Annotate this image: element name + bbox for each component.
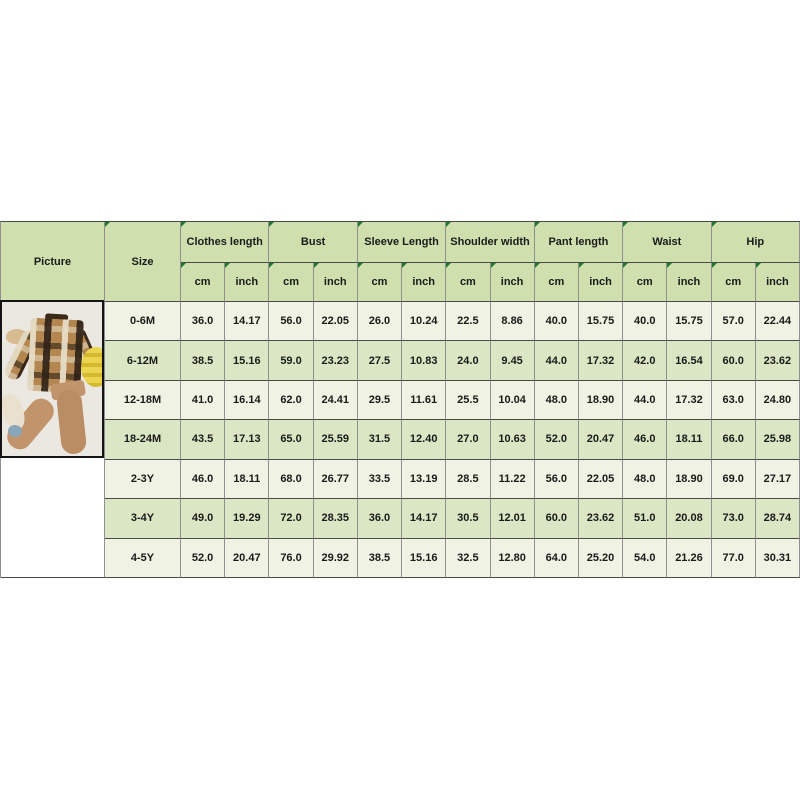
value-cell: 57.0 bbox=[712, 302, 756, 341]
value-cell: 27.0 bbox=[446, 420, 490, 459]
value-cell: 12.40 bbox=[402, 420, 446, 459]
value-cell: 54.0 bbox=[623, 539, 667, 578]
unit-header-cell: cm bbox=[446, 263, 490, 302]
value-cell: 46.0 bbox=[623, 420, 667, 459]
value-cell: 20.47 bbox=[579, 420, 623, 459]
size-cell: 12-18M bbox=[105, 381, 181, 420]
value-cell: 59.0 bbox=[269, 341, 313, 380]
value-cell: 56.0 bbox=[535, 460, 579, 499]
value-cell: 62.0 bbox=[269, 381, 313, 420]
value-cell: 40.0 bbox=[535, 302, 579, 341]
group-header-cell: Clothes length bbox=[181, 222, 269, 263]
value-cell: 9.45 bbox=[491, 341, 535, 380]
value-cell: 15.16 bbox=[225, 341, 269, 380]
unit-header-cell: inch bbox=[314, 263, 358, 302]
value-cell: 11.61 bbox=[402, 381, 446, 420]
size-cell: 0-6M bbox=[105, 302, 181, 341]
value-cell: 23.23 bbox=[314, 341, 358, 380]
group-header-cell: Waist bbox=[623, 222, 711, 263]
value-cell: 17.32 bbox=[667, 381, 711, 420]
value-cell: 30.31 bbox=[756, 539, 800, 578]
unit-header-cell: inch bbox=[579, 263, 623, 302]
picture-header-cell: Picture bbox=[1, 222, 105, 302]
value-cell: 10.24 bbox=[402, 302, 446, 341]
unit-header-cell: inch bbox=[491, 263, 535, 302]
value-cell: 36.0 bbox=[181, 302, 225, 341]
value-cell: 22.44 bbox=[756, 302, 800, 341]
value-cell: 25.59 bbox=[314, 420, 358, 459]
value-cell: 30.5 bbox=[446, 499, 490, 538]
value-cell: 11.22 bbox=[491, 460, 535, 499]
value-cell: 8.86 bbox=[491, 302, 535, 341]
value-cell: 25.20 bbox=[579, 539, 623, 578]
value-cell: 60.0 bbox=[535, 499, 579, 538]
value-cell: 12.01 bbox=[491, 499, 535, 538]
value-cell: 18.90 bbox=[579, 381, 623, 420]
product-photo bbox=[0, 300, 104, 458]
value-cell: 24.41 bbox=[314, 381, 358, 420]
value-cell: 27.17 bbox=[756, 460, 800, 499]
unit-header-cell: cm bbox=[535, 263, 579, 302]
value-cell: 25.5 bbox=[446, 381, 490, 420]
unit-header-cell: cm bbox=[269, 263, 313, 302]
group-header-cell: Pant length bbox=[535, 222, 623, 263]
value-cell: 12.80 bbox=[491, 539, 535, 578]
value-cell: 63.0 bbox=[712, 381, 756, 420]
size-table: PictureSizeClothes lengthBustSleeve Leng… bbox=[0, 221, 800, 578]
unit-header-cell: cm bbox=[712, 263, 756, 302]
size-cell: 18-24M bbox=[105, 420, 181, 459]
unit-header-cell: inch bbox=[756, 263, 800, 302]
group-header-cell: Shoulder width bbox=[446, 222, 534, 263]
value-cell: 33.5 bbox=[358, 460, 402, 499]
value-cell: 41.0 bbox=[181, 381, 225, 420]
unit-header-cell: inch bbox=[225, 263, 269, 302]
value-cell: 64.0 bbox=[535, 539, 579, 578]
size-cell: 2-3Y bbox=[105, 460, 181, 499]
value-cell: 73.0 bbox=[712, 499, 756, 538]
value-cell: 25.98 bbox=[756, 420, 800, 459]
value-cell: 18.11 bbox=[225, 460, 269, 499]
value-cell: 23.62 bbox=[756, 341, 800, 380]
unit-header-cell: cm bbox=[181, 263, 225, 302]
value-cell: 22.5 bbox=[446, 302, 490, 341]
value-cell: 60.0 bbox=[712, 341, 756, 380]
value-cell: 72.0 bbox=[269, 499, 313, 538]
value-cell: 36.0 bbox=[358, 499, 402, 538]
value-cell: 20.08 bbox=[667, 499, 711, 538]
value-cell: 23.62 bbox=[579, 499, 623, 538]
value-cell: 66.0 bbox=[712, 420, 756, 459]
value-cell: 27.5 bbox=[358, 341, 402, 380]
group-header-cell: Hip bbox=[712, 222, 800, 263]
value-cell: 15.16 bbox=[402, 539, 446, 578]
unit-header-cell: inch bbox=[667, 263, 711, 302]
yellow-hat bbox=[81, 347, 104, 387]
bunny-plush-foot bbox=[8, 425, 22, 437]
pant-leg-right bbox=[56, 389, 88, 455]
value-cell: 46.0 bbox=[181, 460, 225, 499]
unit-header-cell: inch bbox=[402, 263, 446, 302]
value-cell: 56.0 bbox=[269, 302, 313, 341]
size-cell: 6-12M bbox=[105, 341, 181, 380]
value-cell: 10.04 bbox=[491, 381, 535, 420]
value-cell: 24.0 bbox=[446, 341, 490, 380]
size-cell: 3-4Y bbox=[105, 499, 181, 538]
value-cell: 21.26 bbox=[667, 539, 711, 578]
value-cell: 18.11 bbox=[667, 420, 711, 459]
value-cell: 19.29 bbox=[225, 499, 269, 538]
value-cell: 52.0 bbox=[181, 539, 225, 578]
value-cell: 40.0 bbox=[623, 302, 667, 341]
value-cell: 32.5 bbox=[446, 539, 490, 578]
value-cell: 17.13 bbox=[225, 420, 269, 459]
group-header-cell: Sleeve Length bbox=[358, 222, 446, 263]
value-cell: 44.0 bbox=[535, 341, 579, 380]
value-cell: 14.17 bbox=[402, 499, 446, 538]
value-cell: 15.75 bbox=[667, 302, 711, 341]
value-cell: 26.0 bbox=[358, 302, 402, 341]
value-cell: 26.77 bbox=[314, 460, 358, 499]
value-cell: 14.17 bbox=[225, 302, 269, 341]
value-cell: 18.90 bbox=[667, 460, 711, 499]
unit-header-cell: cm bbox=[358, 263, 402, 302]
value-cell: 10.63 bbox=[491, 420, 535, 459]
value-cell: 48.0 bbox=[623, 460, 667, 499]
value-cell: 31.5 bbox=[358, 420, 402, 459]
page-canvas: PictureSizeClothes lengthBustSleeve Leng… bbox=[0, 0, 800, 800]
size-cell: 4-5Y bbox=[105, 539, 181, 578]
unit-header-cell: cm bbox=[623, 263, 667, 302]
value-cell: 49.0 bbox=[181, 499, 225, 538]
value-cell: 69.0 bbox=[712, 460, 756, 499]
value-cell: 42.0 bbox=[623, 341, 667, 380]
value-cell: 15.75 bbox=[579, 302, 623, 341]
value-cell: 29.5 bbox=[358, 381, 402, 420]
value-cell: 38.5 bbox=[181, 341, 225, 380]
value-cell: 22.05 bbox=[579, 460, 623, 499]
value-cell: 51.0 bbox=[623, 499, 667, 538]
size-header-cell: Size bbox=[105, 222, 181, 302]
value-cell: 16.54 bbox=[667, 341, 711, 380]
value-cell: 65.0 bbox=[269, 420, 313, 459]
value-cell: 17.32 bbox=[579, 341, 623, 380]
value-cell: 43.5 bbox=[181, 420, 225, 459]
value-cell: 28.5 bbox=[446, 460, 490, 499]
value-cell: 44.0 bbox=[623, 381, 667, 420]
value-cell: 20.47 bbox=[225, 539, 269, 578]
value-cell: 10.83 bbox=[402, 341, 446, 380]
value-cell: 13.19 bbox=[402, 460, 446, 499]
value-cell: 52.0 bbox=[535, 420, 579, 459]
value-cell: 28.35 bbox=[314, 499, 358, 538]
group-header-cell: Bust bbox=[269, 222, 357, 263]
value-cell: 29.92 bbox=[314, 539, 358, 578]
value-cell: 76.0 bbox=[269, 539, 313, 578]
value-cell: 28.74 bbox=[756, 499, 800, 538]
value-cell: 16.14 bbox=[225, 381, 269, 420]
value-cell: 22.05 bbox=[314, 302, 358, 341]
value-cell: 24.80 bbox=[756, 381, 800, 420]
value-cell: 77.0 bbox=[712, 539, 756, 578]
value-cell: 68.0 bbox=[269, 460, 313, 499]
value-cell: 38.5 bbox=[358, 539, 402, 578]
value-cell: 48.0 bbox=[535, 381, 579, 420]
